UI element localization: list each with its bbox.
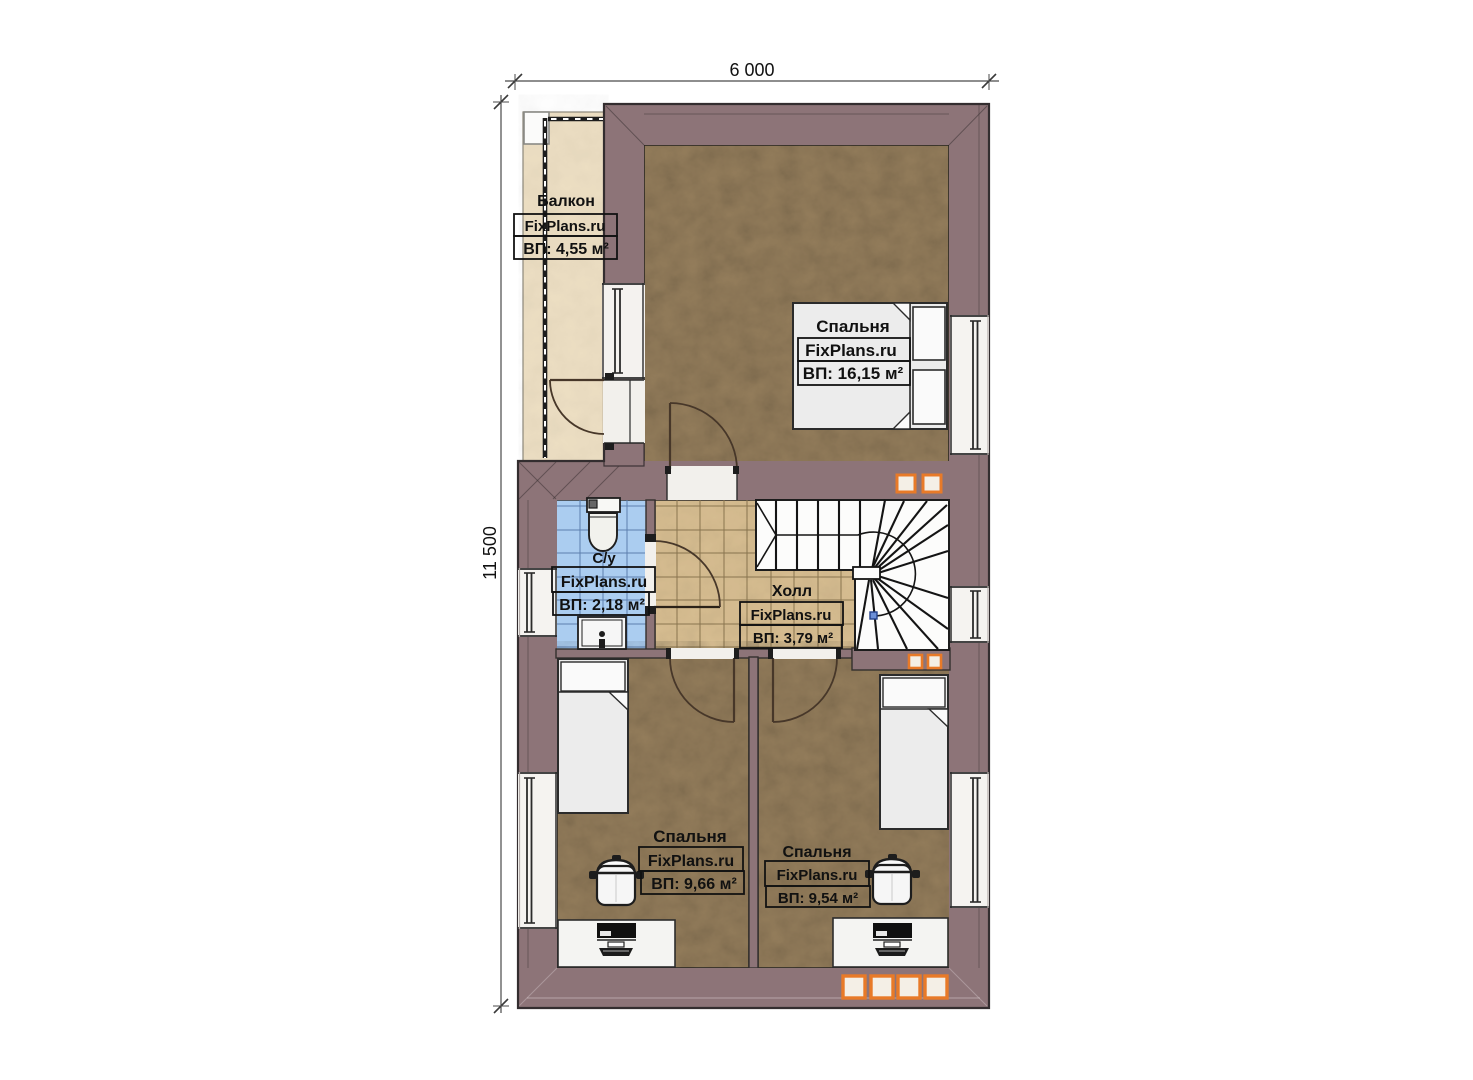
svg-text:FixPlans.ru: FixPlans.ru (648, 853, 734, 870)
svg-text:Спальня: Спальня (816, 317, 889, 336)
svg-text:С/у: С/у (592, 550, 616, 567)
svg-text:ВП: 4,55 м²: ВП: 4,55 м² (523, 241, 609, 258)
svg-text:ВП: 9,66 м²: ВП: 9,66 м² (651, 876, 737, 893)
svg-text:Спальня: Спальня (782, 844, 851, 861)
svg-text:11 500: 11 500 (480, 526, 500, 580)
svg-text:Балкон: Балкон (537, 193, 595, 210)
svg-text:FixPlans.ru: FixPlans.ru (805, 341, 897, 360)
svg-text:ВП: 9,54 м²: ВП: 9,54 м² (778, 890, 858, 907)
svg-text:ВП: 2,18 м²: ВП: 2,18 м² (559, 597, 645, 614)
svg-text:Холл: Холл (772, 583, 812, 600)
svg-text:FixPlans.ru: FixPlans.ru (751, 607, 832, 624)
svg-text:Спальня: Спальня (653, 827, 726, 846)
svg-text:FixPlans.ru: FixPlans.ru (777, 867, 858, 884)
svg-text:FixPlans.ru: FixPlans.ru (525, 218, 606, 235)
svg-text:6 000: 6 000 (729, 60, 774, 80)
svg-text:ВП: 3,79 м²: ВП: 3,79 м² (753, 630, 833, 647)
svg-text:ВП: 16,15 м²: ВП: 16,15 м² (803, 364, 904, 383)
svg-text:FixPlans.ru: FixPlans.ru (561, 574, 647, 591)
